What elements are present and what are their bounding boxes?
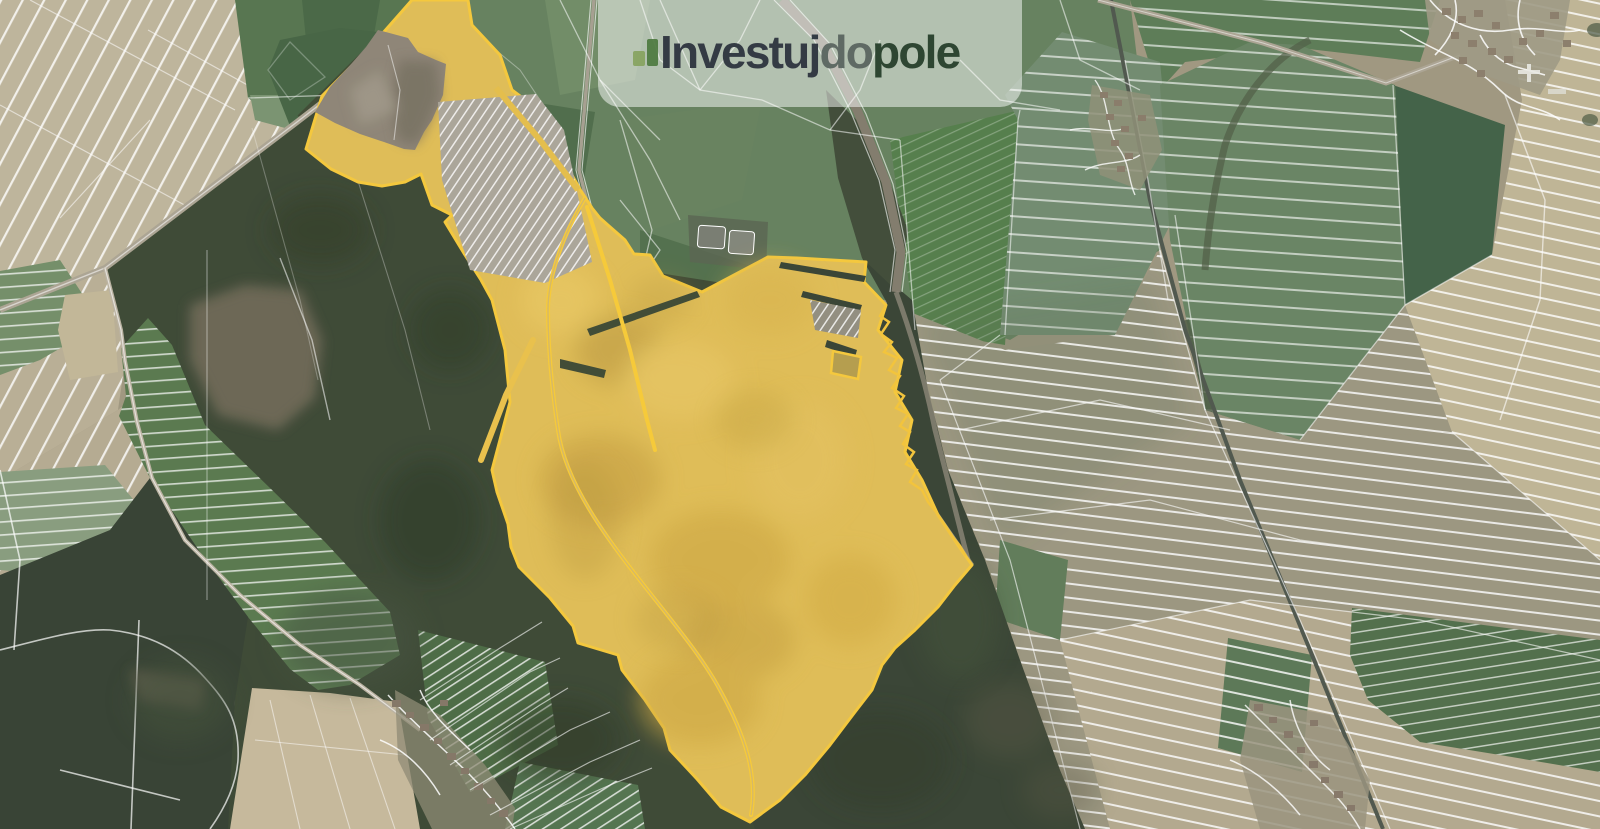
svg-text:Investujdopole: Investujdopole xyxy=(660,26,961,78)
